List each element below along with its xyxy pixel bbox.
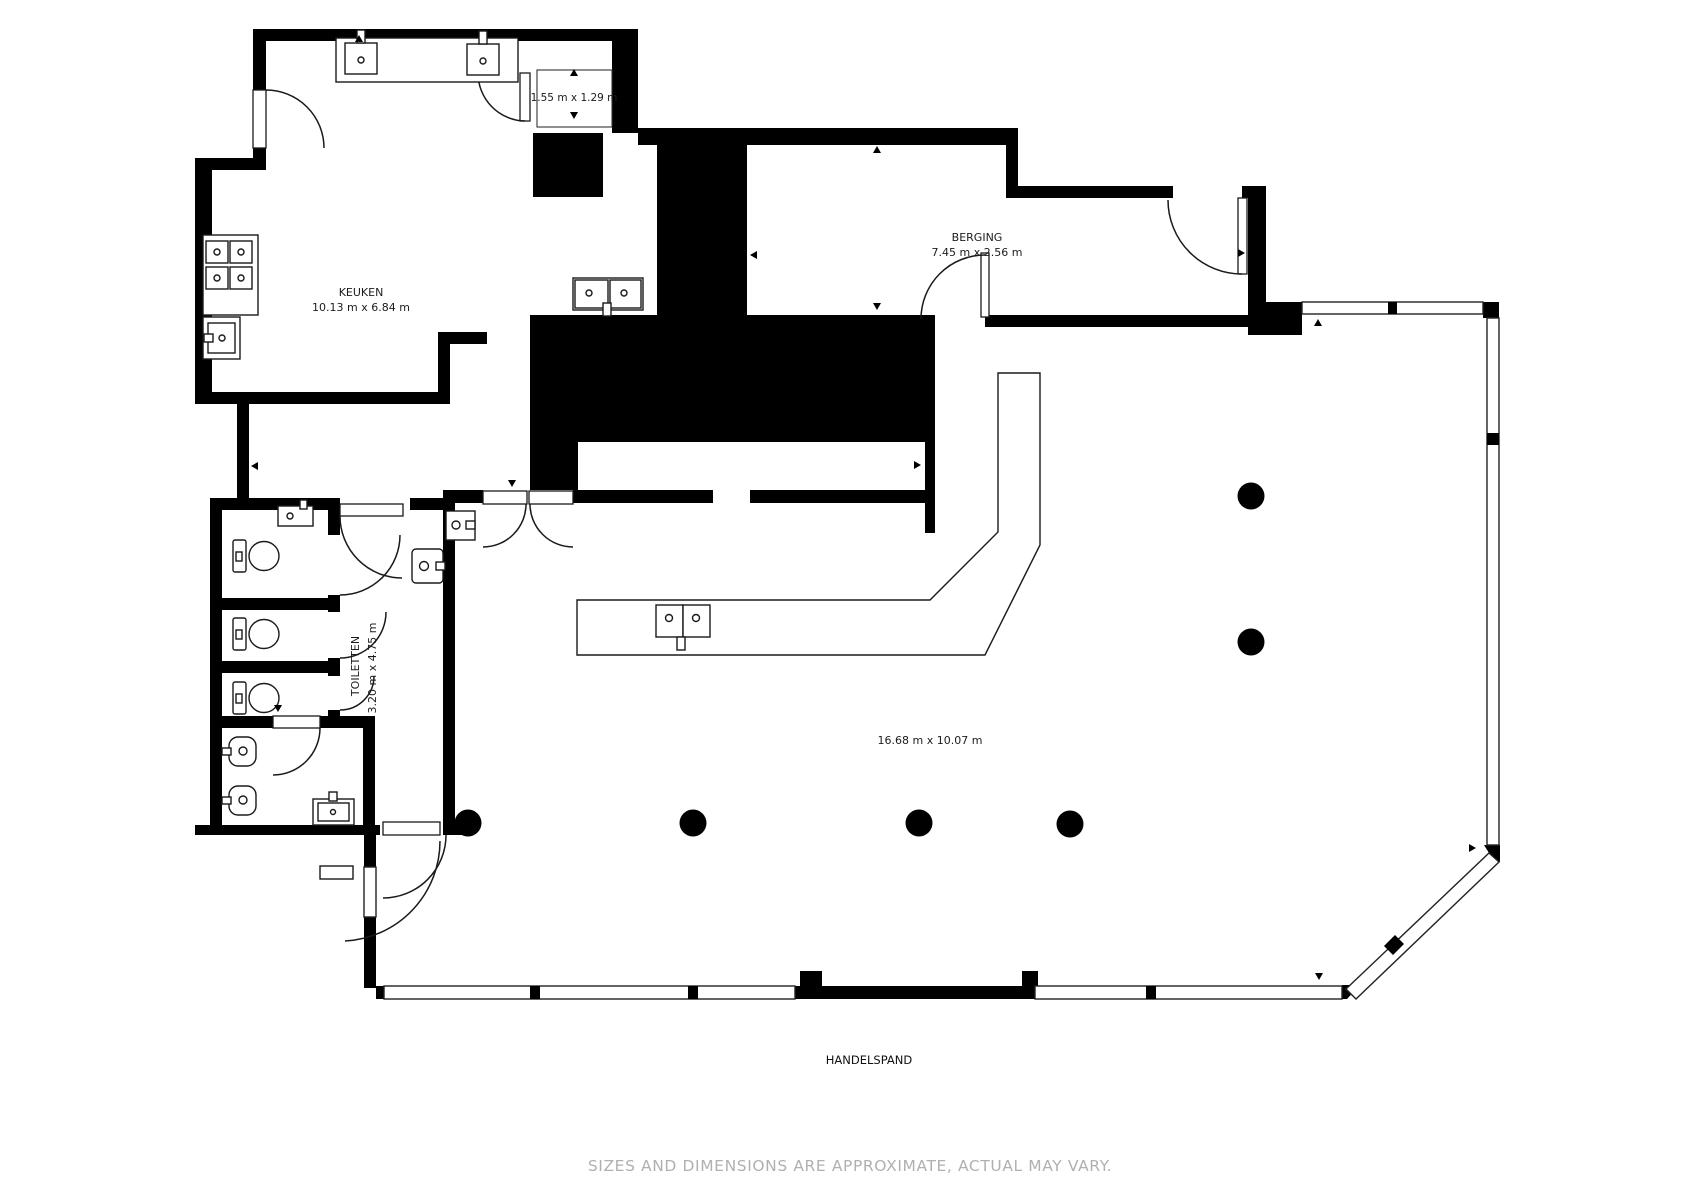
stove-icon <box>203 235 258 315</box>
room-dim-berging: 7.45 m x 2.56 m <box>932 246 1023 259</box>
column <box>1238 629 1265 656</box>
washroom-basin-icon <box>222 737 256 766</box>
room-dim-toiletten: 3.20 m x 4.75 m <box>366 623 379 714</box>
door-main-entrance <box>345 822 446 941</box>
toilet-icon <box>233 540 279 572</box>
window-south-left <box>384 986 795 999</box>
door-berging-south <box>921 253 989 319</box>
building-label: HANDELSPAND <box>826 1053 913 1067</box>
door-kitchen-west <box>253 90 324 148</box>
kitchen-side-sink-icon <box>203 317 240 359</box>
room-dim-main-hall: 16.68 m x 10.07 m <box>878 734 983 747</box>
door-corridor-double <box>483 491 573 547</box>
washroom-counter-sink-icon <box>313 792 354 825</box>
column <box>455 810 482 837</box>
columns <box>455 483 1265 838</box>
column <box>1057 811 1084 838</box>
window-west-vestibule <box>364 867 376 917</box>
column <box>906 810 933 837</box>
floor-plan-canvas: KEUKEN 10.13 m x 6.84 m BERGING 7.45 m x… <box>0 0 1696 1200</box>
door-berging-northeast <box>1168 198 1247 274</box>
washroom-basin-icon <box>222 786 256 815</box>
disclaimer-text: SIZES AND DIMENSIONS ARE APPROXIMATE, AC… <box>588 1157 1112 1175</box>
room-label-berging: BERGING <box>952 231 1003 244</box>
window-south-right <box>1035 986 1342 999</box>
room-dim-storage-nook: 1.55 m x 1.29 m <box>531 92 618 104</box>
room-dim-keuken: 10.13 m x 6.84 m <box>312 301 410 314</box>
fixtures <box>203 30 1040 879</box>
kitchen-island-counter <box>573 278 643 316</box>
door-washroom <box>273 716 320 775</box>
door-toiletten-entry <box>340 504 403 578</box>
room-label-toiletten: TOILETTEN <box>349 636 362 697</box>
window-east <box>1487 318 1499 845</box>
corridor-basin-icon <box>412 549 445 583</box>
doors <box>253 73 1247 941</box>
window-chamfer <box>1346 853 1499 999</box>
kitchen-wall-counter <box>336 30 518 82</box>
column <box>680 810 707 837</box>
room-label-keuken: KEUKEN <box>339 286 384 299</box>
toilet-icon <box>233 682 279 714</box>
handwash-basin-icon <box>446 511 475 540</box>
vestibule-step <box>320 866 353 879</box>
toilet-icon <box>233 618 279 650</box>
column <box>1238 483 1265 510</box>
floor-plan-page: KEUKEN 10.13 m x 6.84 m BERGING 7.45 m x… <box>0 0 1696 1200</box>
